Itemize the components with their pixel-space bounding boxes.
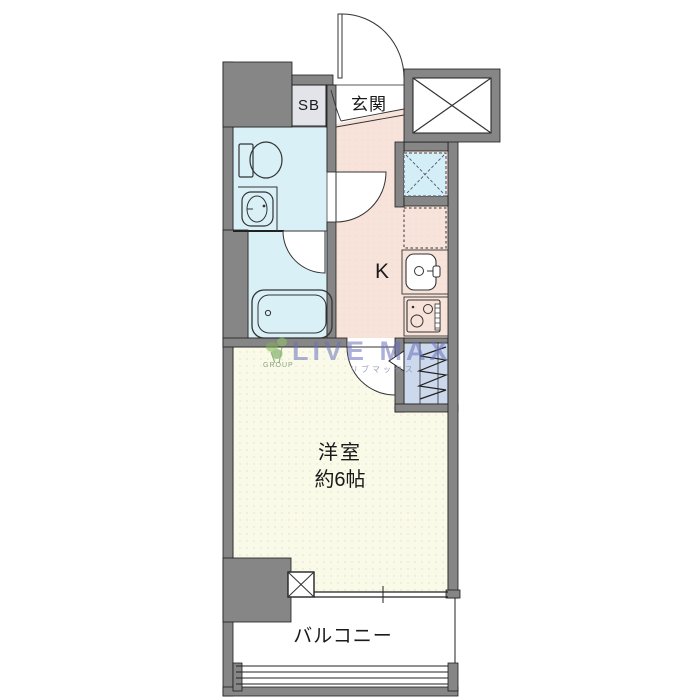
railing-post-left	[233, 663, 242, 691]
gas-stove-icon	[404, 297, 448, 336]
bottom-left-wall-block	[223, 558, 291, 622]
balcony-bottom-wall	[223, 687, 458, 696]
watermark-katakana: リブマックス	[350, 364, 416, 375]
watermark-brand: LIVE MAX	[292, 336, 452, 367]
pipe-space-x-box	[288, 572, 314, 597]
wet-area-wall-upper	[327, 85, 336, 172]
floorplan-canvas: SB 玄関 K 洋室 約6帖 バルコニー LIVE MAX リブマックス GRO…	[0, 0, 700, 700]
right-wall-foot	[446, 590, 460, 598]
shoe-box-label: SB	[292, 85, 326, 126]
balcony-label: バルコニー	[263, 621, 423, 648]
genkan-kitchen-stub-wall	[395, 142, 404, 207]
western-room-label: 洋室	[260, 436, 420, 465]
kitchen-sink-icon	[402, 250, 448, 294]
laundry-fridge-divider-wall	[404, 196, 448, 206]
watermark-group: GROUP	[263, 362, 294, 369]
entrance-top-wall	[292, 75, 333, 85]
room-size-label: 約6帖	[260, 463, 420, 492]
kitchen-label: K	[368, 260, 396, 284]
entrance-label: 玄関	[340, 90, 398, 115]
washing-machine-space	[404, 153, 446, 196]
top-left-wall-block	[223, 62, 292, 127]
toilet-room-floor	[233, 127, 327, 231]
bathroom-left-wall	[223, 230, 248, 345]
under-elevator-wall	[404, 142, 448, 151]
railing-post-right	[448, 663, 458, 691]
entry-door-swing	[338, 14, 404, 78]
elevator-x-box	[404, 69, 500, 142]
